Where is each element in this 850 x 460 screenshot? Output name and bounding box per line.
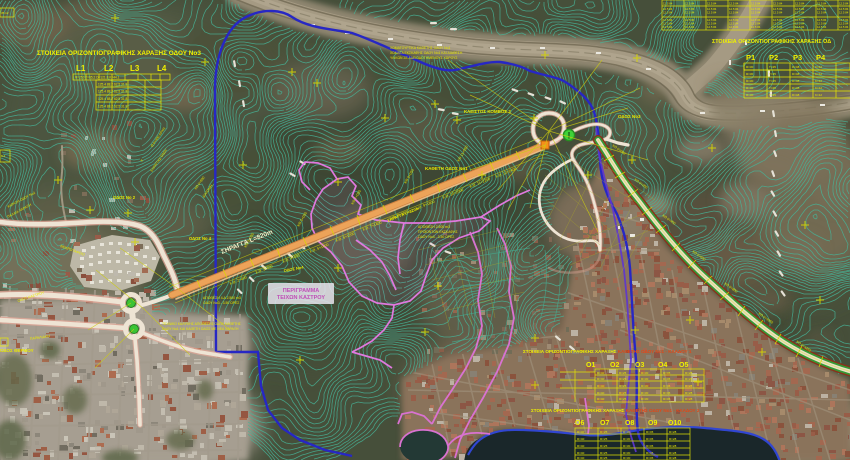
svg-text:ΚΑΘΕΤΗ ΟΔΟΣ Νο1: ΚΑΘΕΤΗ ΟΔΟΣ Νο1 [425, 166, 468, 171]
svg-text:12.5 8412.5 8412.5 8412.5 8412: 12.5 8412.5 8412.5 8412.5 8412.5 8412.5 … [663, 2, 849, 6]
svg-text:125.4 88.2 62.5 31.8: 125.4 88.2 62.5 31.8 [98, 83, 127, 87]
svg-text:ΑΠΟΘΕΣΗ 2.500 m3: ΑΠΟΘΕΣΗ 2.500 m3 [418, 225, 450, 229]
svg-text:ΟΔΟΥ Νο1 ΚΑΙ ΚΑΘΕΤΗ ΟΔΟΣ ΜΕ ΝΕ: ΟΔΟΥ Νο1 ΚΑΙ ΚΑΘΕΤΗ ΟΔΟΣ ΜΕ ΝΕΑ ΧΑΡΑΞΗ [162, 327, 239, 331]
svg-text:L3: L3 [130, 64, 140, 73]
svg-text:O9: O9 [648, 420, 657, 427]
svg-text:ΧΩΜΑΤΟΥΡΓΙΚΑ ΚΑΘΕΤΗΣ ΟΔΟΥ Νο1: ΧΩΜΑΤΟΥΡΓΙΚΑ ΚΑΘΕΤΗΣ ΟΔΟΥ Νο1 [390, 46, 450, 50]
svg-text:ΣΤΟΙΧΕΙΑ ΟΡΙΖΟΝΤΙΟΓΡΑΦΙΚΗΣ ΧΑΡ: ΣΤΟΙΧΕΙΑ ΟΡΙΖΟΝΤΙΟΓΡΑΦΙΚΗΣ ΧΑΡΑΞΗΣ ΟΔΟΥ … [37, 50, 201, 57]
svg-text:O10: O10 [668, 420, 681, 427]
svg-text:ΤΕΙΧΩΝ ΚΑΣΤΡΟΥ: ΤΕΙΧΩΝ ΚΑΣΤΡΟΥ [277, 295, 326, 301]
svg-text:125.4 88.2 62.5 31.8: 125.4 88.2 62.5 31.8 [98, 90, 127, 94]
svg-text:L1: L1 [76, 64, 86, 73]
svg-text:ΟΔΟΥ Νο3 - 3.50 ΩΡΕΣ: ΟΔΟΥ Νο3 - 3.50 ΩΡΕΣ [418, 235, 454, 239]
svg-text:O7: O7 [600, 420, 609, 427]
svg-text:P4: P4 [816, 53, 826, 62]
svg-text:ΣΤΟΙΧΕΙΑ ΟΡΙΖΟΝΤΙΟΓΡΑΦΙΚΗΣ ΧΑΡ: ΣΤΟΙΧΕΙΑ ΟΡΙΖΟΝΤΙΟΓΡΑΦΙΚΗΣ ΧΑΡΑΞΗΣ ΚΑΘΕΤ… [523, 349, 692, 354]
svg-text:ΟΔΟΥ Νο3 - 3.50 ΩΡΕΣ: ΟΔΟΥ Νο3 - 3.50 ΩΡΕΣ [203, 301, 239, 305]
svg-text:ΟΔΟΣ Νο 2: ΟΔΟΣ Νο 2 [113, 195, 136, 200]
svg-text:P3: P3 [793, 53, 802, 62]
svg-text:ΧΩΜΑΤΑ ΕΚΣΚΑΦΗΣ ΟΔΟΥ Νο1 ΚΑΙ Δ: ΧΩΜΑΤΑ ΕΚΣΚΑΦΗΣ ΟΔΟΥ Νο1 ΚΑΙ ΔΙΑΘΕΣΗ [390, 51, 463, 55]
svg-text:O5: O5 [679, 362, 688, 369]
svg-text:P1: P1 [746, 53, 755, 62]
svg-text:125.4 88.2 62.5 31.8: 125.4 88.2 62.5 31.8 [98, 97, 127, 101]
svg-text:ΥΛΙΚΩΝ ΣΕ ΑΔΕΙΟΔΟΤΗΜΕΝΟΥΣ ΧΩΡΟ: ΥΛΙΚΩΝ ΣΕ ΑΔΕΙΟΔΟΤΗΜΕΝΟΥΣ ΧΩΡΟΥΣ [390, 56, 457, 60]
svg-text:ΟΔΟΣ ΘΕΡΜΟΥ: ΟΔΟΣ ΘΕΡΜΟΥ [0, 348, 34, 353]
svg-text:ΣΤΟΙΧΕΙΑ ΟΡΙΖΟΝΤΙΟΓΡΑΦΙΚΗΣ ΧΑΡ: ΣΤΟΙΧΕΙΑ ΟΡΙΖΟΝΤΙΟΓΡΑΦΙΚΗΣ ΧΑΡΑΞΗΣ ΚΑΘΕΤ… [531, 408, 700, 413]
svg-text:12.5 8412.5 8412.5 8412.5 8412: 12.5 8412.5 8412.5 8412.5 8412.5 8412.5 … [663, 25, 849, 29]
svg-text:ΑΠΟΘΕΣΗ 4.Δ 2.500 m3: ΑΠΟΘΕΣΗ 4.Δ 2.500 m3 [203, 296, 241, 300]
svg-text:ΟΔΟΣ Νο 4: ΟΔΟΣ Νο 4 [189, 236, 212, 241]
svg-text:L2: L2 [104, 64, 114, 73]
svg-text:ΟΔΟΣ Νο3: ΟΔΟΣ Νο3 [618, 114, 641, 119]
svg-text:ΚΛΕΙΣΤΟΣ ΚΟΜΒΟΣ 2: ΚΛΕΙΣΤΟΣ ΚΟΜΒΟΣ 2 [464, 109, 511, 114]
svg-text:O8: O8 [625, 420, 634, 427]
svg-text:ΠΕΡΙΓΡΑΜΜΑ: ΠΕΡΙΓΡΑΜΜΑ [283, 288, 320, 294]
svg-text:ΣΤΟΙΧΕΙΑ ΟΡΙΖΟΝΤΙΟΓΡΑΦΙΚΗΣ ΧΑΡ: ΣΤΟΙΧΕΙΑ ΟΡΙΖΟΝΤΙΟΓΡΑΦΙΚΗΣ ΧΑΡΑΞΗΣ ΟΔ [712, 39, 831, 45]
svg-text:8.4: 8.4 [1, 154, 6, 158]
svg-text:L4: L4 [157, 64, 167, 73]
svg-text:O6: O6 [575, 420, 584, 427]
svg-text:125.4 88.2 62.5 31.8: 125.4 88.2 62.5 31.8 [98, 105, 127, 109]
svg-text:12.5 8412.5 8412.5 8412.5 8412: 12.5 8412.5 8412.5 8412.5 8412.5 8412.5 … [663, 11, 849, 15]
svg-text:P2: P2 [769, 53, 778, 62]
svg-text:R=250 T=85.2 D=121.8 K=44.1: R=250 T=85.2 D=121.8 K=44.1 [75, 76, 120, 80]
svg-text:ΠΡΟΪΟΝΤΩΝ ΕΚΣΚΑΦΗΣ: ΠΡΟΪΟΝΤΩΝ ΕΚΣΚΑΦΗΣ [418, 230, 458, 234]
svg-text:35.12: 35.12 [1, 11, 9, 15]
svg-text:O2: O2 [610, 362, 619, 369]
svg-text:O3: O3 [635, 362, 644, 369]
svg-text:ΤΕΧΝΙΚΟ ΚΑΛΥΨΗΣ ΑΠΟΘΕΣΗΣ ΟΔΟΥ: ΤΕΧΝΙΚΟ ΚΑΛΥΨΗΣ ΑΠΟΘΕΣΗΣ ΟΔΟΥ ΚΑΘΕΤΗΣ [162, 322, 241, 326]
svg-text:O4: O4 [658, 362, 667, 369]
svg-text:O1: O1 [586, 362, 595, 369]
